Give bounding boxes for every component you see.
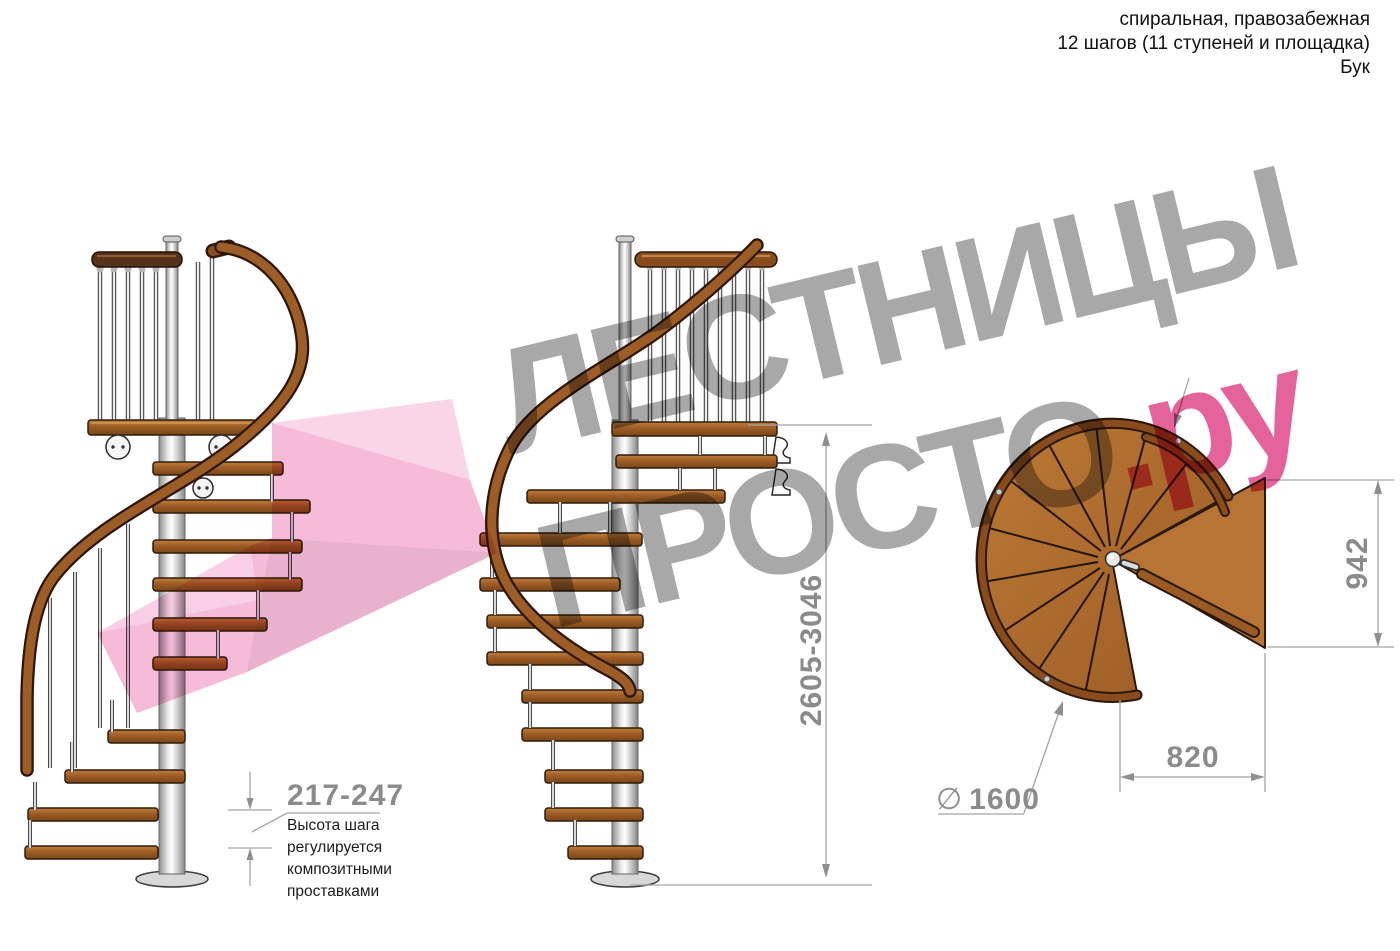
diameter-symbol: ∅: [936, 783, 963, 816]
total-height-dimension: 2605-3046: [795, 574, 829, 726]
step-height-note: Высота шага регулируется композитными пр…: [287, 815, 392, 903]
platform-handrail: [92, 252, 182, 267]
stair-type: спиральная, правозабежная: [1057, 8, 1370, 32]
landing-depth-dimension: 942: [1341, 536, 1375, 589]
stair-steps: 12 шагов (11 ступеней и площадка): [1057, 32, 1370, 56]
drawing-sheet: ЛЕСТНИЦЫ ПРОСТО.ру спиральная, правозабе…: [0, 0, 1400, 951]
left-elevation-view: [25, 236, 310, 887]
post-cap: [616, 236, 634, 242]
center-pole: [1106, 552, 1121, 567]
landing-width-dimension: 820: [1166, 741, 1219, 775]
stair-material: Бук: [1057, 56, 1370, 80]
step-height-dimension: 217-247: [287, 779, 404, 813]
watermark-domain: .ру: [1092, 317, 1319, 523]
title-block: спиральная, правозабежная 12 шагов (11 с…: [1057, 8, 1370, 80]
post-cap: [163, 236, 181, 242]
diameter-dimension: ∅1600: [936, 782, 1040, 817]
